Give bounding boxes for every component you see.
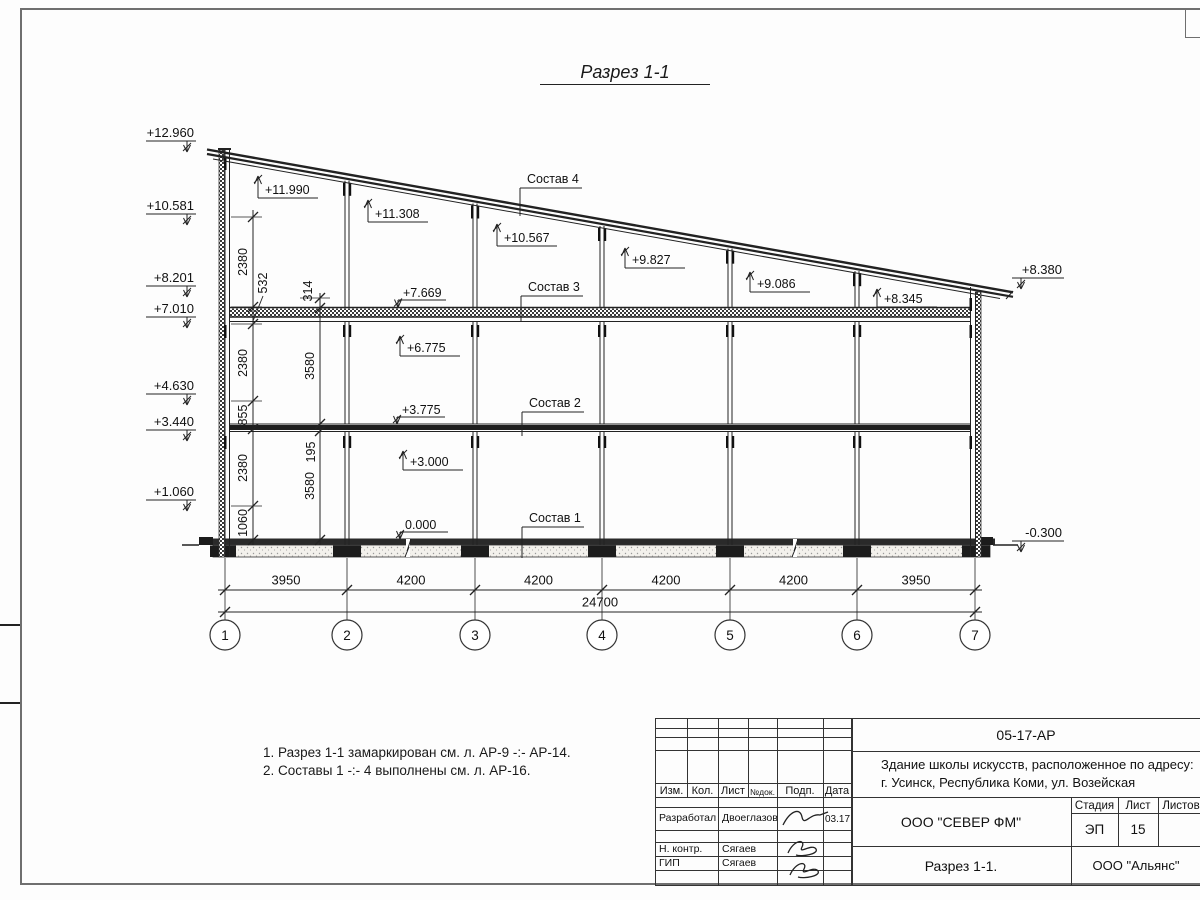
elevation-mark-label: +1.060: [154, 484, 194, 499]
slab-hatch: [229, 309, 971, 317]
roof-underside: [213, 159, 1000, 299]
column-joint: [598, 436, 600, 448]
column-joint: [732, 436, 734, 448]
chain-dim: 3580: [303, 472, 317, 500]
elevation-mark-label: +10.581: [147, 198, 194, 213]
tb-role: Разработал: [659, 812, 716, 824]
column-joint: [349, 325, 351, 337]
wall-joint: [224, 436, 227, 449]
column-joint: [343, 325, 345, 337]
chain-dim: 532: [256, 273, 270, 294]
tb-sheet-value: 15: [1118, 822, 1158, 837]
column-joint: [343, 436, 345, 448]
span-dim: 4200: [652, 573, 681, 588]
chain-dim: 2380: [236, 454, 250, 482]
level-annotation: 0.000: [405, 518, 436, 532]
chain-dim: 195: [304, 442, 318, 463]
roof-line: [207, 150, 1013, 293]
column-joint: [471, 436, 473, 448]
tb-col-doc: №док.: [748, 787, 777, 797]
chain-dim: 855: [236, 405, 250, 426]
axis-number: 2: [343, 628, 351, 643]
column-joint: [598, 228, 600, 241]
column-base-block: [843, 546, 871, 558]
layer-label: Состав 4: [527, 172, 579, 186]
level-annotation: +11.308: [375, 207, 420, 221]
elevation-mark-label: +8.380: [1022, 262, 1062, 277]
column-joint: [604, 228, 606, 241]
column-joint: [859, 436, 861, 448]
column-base-block: [333, 546, 361, 558]
title-block: Изм. Кол. Лист №док. Подп. Дата Разработ…: [655, 718, 1200, 886]
tb-col-kol: Кол.: [687, 785, 718, 797]
column-joint: [726, 325, 728, 337]
column-joint: [726, 436, 728, 448]
signature-icon: [782, 837, 828, 883]
wall-joint: [970, 298, 973, 311]
span-dim: 3950: [902, 573, 931, 588]
elevation-mark-label: +7.010: [154, 301, 194, 316]
column-joint: [477, 436, 479, 448]
wall-insulation: [976, 292, 982, 557]
note-line: 2. Составы 1 -:- 4 выполнены см. л. АР-1…: [263, 762, 571, 780]
tb-col-list: Лист: [718, 785, 748, 797]
span-dim: 4200: [397, 573, 426, 588]
wall-joint: [970, 325, 973, 338]
note-line: 1. Разрез 1-1 замаркирован см. л. АР-9 -…: [263, 744, 571, 762]
axis-number: 5: [726, 628, 734, 643]
level-annotation: +10.567: [504, 231, 550, 245]
column-joint: [859, 273, 861, 286]
tb-stage-label: Стадия: [1071, 800, 1118, 812]
floor-slab-2: [229, 425, 971, 430]
column-joint: [471, 325, 473, 337]
column-joint: [853, 273, 855, 286]
notes: 1. Разрез 1-1 замаркирован см. л. АР-9 -…: [263, 744, 571, 780]
floor-slab: [207, 539, 995, 546]
column-joint: [604, 325, 606, 337]
tb-sheets-label: Листов: [1158, 800, 1200, 812]
foundation-step: [199, 537, 213, 545]
tb-designer-company: ООО "СЕВЕР ФМ": [851, 814, 1071, 830]
tb-role: ГИП: [659, 857, 680, 869]
axis-number: 3: [471, 628, 479, 643]
level-annotation: +8.345: [884, 292, 923, 306]
layer-label: Состав 3: [528, 280, 580, 294]
tb-drawing-title: Разрез 1-1.: [851, 858, 1071, 874]
column-joint: [349, 183, 351, 196]
tb-role-name: Сягаев: [722, 843, 756, 855]
tb-project-line2: г. Усинск, Республика Коми, ул. Возейска…: [881, 775, 1135, 790]
chain-dim: 2380: [236, 349, 250, 377]
level-annotation: +11.990: [265, 183, 310, 197]
column-joint: [853, 436, 855, 448]
signature-icon: [780, 805, 830, 833]
level-annotation: +3.000: [410, 455, 449, 469]
column-joint: [853, 325, 855, 337]
column-joint: [732, 325, 734, 337]
elevation-mark-label: +12.960: [147, 125, 194, 140]
span-dim: 3950: [272, 573, 301, 588]
column-joint: [604, 436, 606, 448]
tb-sheet-label: Лист: [1118, 800, 1158, 812]
column-joint: [477, 205, 479, 218]
layer-label: Состав 1: [529, 511, 581, 525]
elevation-mark-label: -0.300: [1025, 525, 1062, 540]
chain-dim: 2380: [236, 248, 250, 276]
elevation-mark-label: +4.630: [154, 378, 194, 393]
wall-insulation: [219, 150, 225, 557]
tb-role-name: Сягаев: [722, 857, 756, 869]
axis-number: 4: [598, 628, 606, 643]
column-base-block: [461, 546, 489, 558]
column-joint: [349, 436, 351, 448]
column-joint: [343, 183, 345, 196]
tb-stage-value: ЭП: [1071, 822, 1118, 837]
column-joint: [477, 325, 479, 337]
chain-dim: 314: [301, 281, 315, 302]
column-joint: [859, 325, 861, 337]
axis-number: 1: [221, 628, 229, 643]
tb-col-data: Дата: [823, 785, 851, 797]
wall-joint: [970, 436, 973, 449]
tb-role: Н. контр.: [659, 843, 702, 855]
span-dim: 4200: [779, 573, 808, 588]
wall-joint: [224, 325, 227, 338]
level-annotation: +3.775: [402, 403, 441, 417]
span-dim: 4200: [524, 573, 553, 588]
layer-label: Состав 2: [529, 396, 581, 410]
level-annotation: +9.827: [632, 253, 671, 267]
section-drawing: 1234567395042004200420042003950247002380…: [0, 0, 1200, 720]
column-joint: [726, 251, 728, 264]
column-base-block: [588, 546, 616, 558]
level-annotation: +7.669: [403, 286, 442, 300]
chain-dim: 1060: [236, 509, 250, 537]
column-joint: [732, 251, 734, 264]
total-dim: 24700: [582, 595, 618, 610]
chain-dim: 3580: [303, 352, 317, 380]
tb-project-line1: Здание школы искусств, расположенное по …: [881, 757, 1194, 772]
elevation-mark-label: +3.440: [154, 414, 194, 429]
tb-role-name: Двоеглазов: [722, 812, 778, 824]
tb-doc-number: 05-17-АР: [851, 727, 1200, 743]
level-annotation: +9.086: [757, 277, 796, 291]
tb-client-company: ООО "Альянс": [1071, 858, 1200, 873]
axis-number: 6: [853, 628, 861, 643]
elevation-mark-label: +8.201: [154, 270, 194, 285]
column-joint: [598, 325, 600, 337]
axis-number: 7: [971, 628, 979, 643]
column-joint: [471, 205, 473, 218]
roof-line: [207, 154, 1013, 297]
column-base-block: [716, 546, 744, 558]
tb-col-podp: Подп.: [777, 785, 823, 797]
tb-col-izm: Изм.: [656, 785, 687, 797]
wall-joint: [224, 157, 227, 170]
level-annotation: +6.775: [407, 341, 446, 355]
drawing-sheet: { "sheet": { "title": "Разрез 1-1", "not…: [0, 0, 1200, 900]
